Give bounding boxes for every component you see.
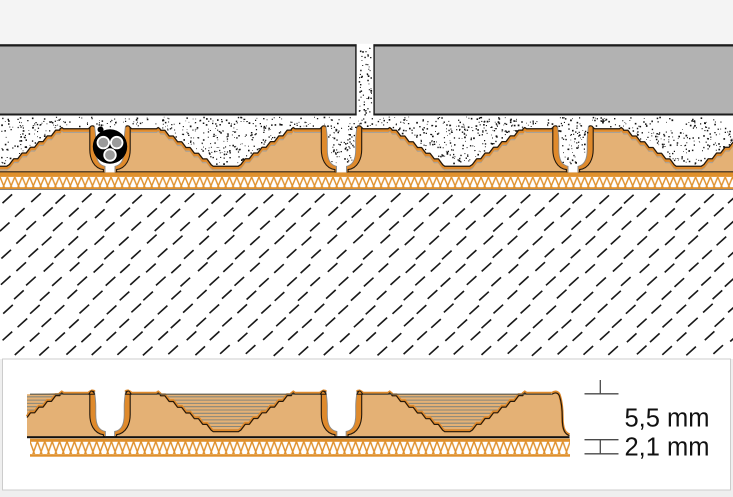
svg-text:5,5 mm: 5,5 mm [625, 405, 710, 433]
svg-text:2,1 mm: 2,1 mm [625, 434, 710, 462]
